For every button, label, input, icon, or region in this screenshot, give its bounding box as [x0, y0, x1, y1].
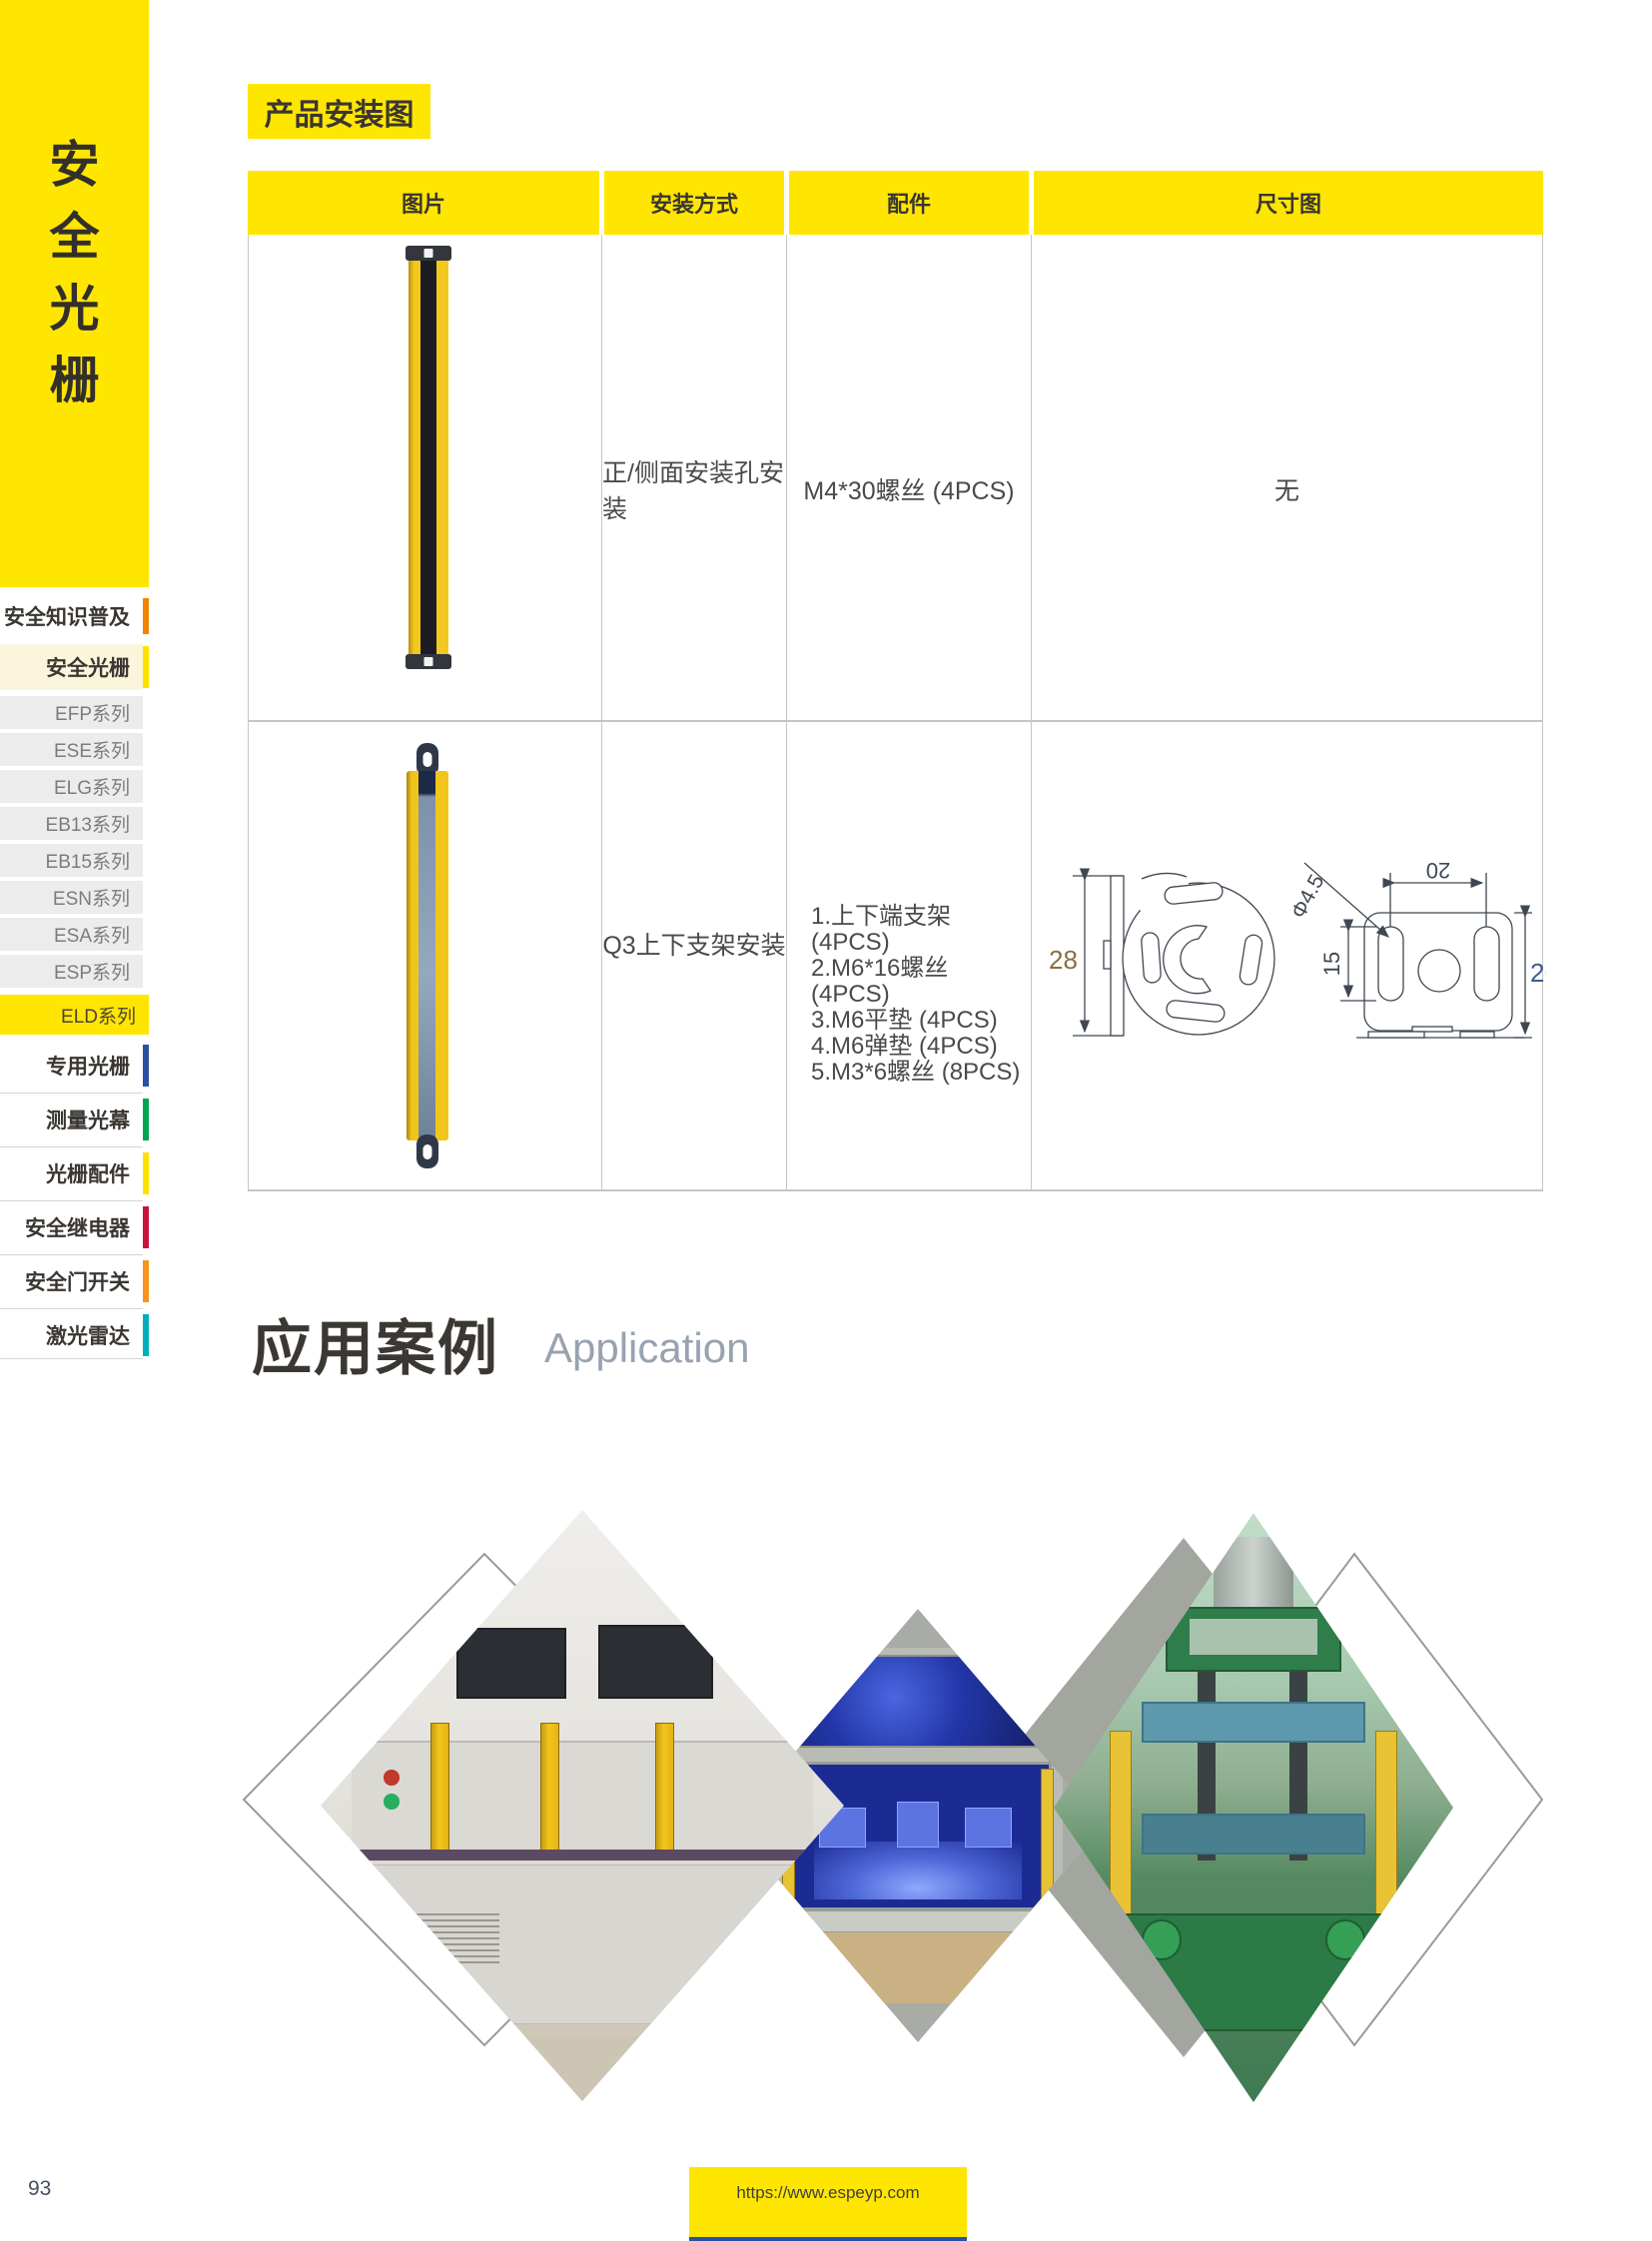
sidebar-item-safety-door-switch[interactable]: 安全门开关	[0, 1256, 143, 1306]
sidebar-divider	[0, 1093, 143, 1094]
table-grid-line	[1031, 235, 1032, 1190]
application-title-cn: 应用案例	[252, 1300, 499, 1387]
sidebar-item-safety-knowledge[interactable]: 安全知识普及	[0, 596, 143, 636]
dim-label-15: 15	[1319, 952, 1344, 976]
sidebar-bar-orange	[143, 598, 149, 634]
sidebar-item-laser-radar[interactable]: 激光雷达	[0, 1310, 143, 1360]
brand-char: 栅	[50, 356, 100, 405]
sidebar-bar-teal	[143, 1314, 149, 1356]
sidebar-bar-green	[143, 1099, 149, 1140]
sidebar-bar-yellow	[143, 646, 149, 688]
sidebar-item-esn-series[interactable]: ESN系列	[0, 881, 143, 914]
accessory-item: 4.M6弹垫 (4PCS)	[811, 1034, 1031, 1060]
dim-label-20: 20	[1426, 858, 1450, 883]
accessory-item: 3.M6平垫 (4PCS)	[811, 1008, 1031, 1034]
table-header-accessories: 配件	[789, 171, 1029, 235]
accessory-item: 2.M6*16螺丝 (4PCS)	[811, 956, 1031, 1008]
sidebar-item-eb15-series[interactable]: EB15系列	[0, 844, 143, 877]
brand-char: 光	[50, 284, 100, 334]
sidebar-brand-vertical-title: 安 全 光 栅	[0, 140, 149, 405]
page-number: 93	[28, 2177, 51, 2201]
table-header-image: 图片	[248, 171, 599, 235]
brand-char: 安	[50, 140, 100, 190]
dim-label-28: 28	[1049, 945, 1078, 975]
sidebar-item-special-curtain[interactable]: 专用光栅	[0, 1041, 143, 1091]
sidebar-bar-blue	[143, 1045, 149, 1087]
sidebar-divider	[0, 1146, 143, 1147]
table-border-left	[248, 235, 249, 1190]
row1-accessories: M4*30螺丝 (4PCS)	[787, 459, 1031, 519]
table-border-bottom	[248, 1189, 1543, 1191]
sidebar-item-ese-series[interactable]: ESE系列	[0, 733, 143, 766]
table-header-install-method: 安装方式	[604, 171, 784, 235]
row2-accessories-list: 1.上下端支架 (4PCS) 2.M6*16螺丝 (4PCS) 3.M6平垫 (…	[811, 904, 1031, 1086]
light-curtain-image-row1	[406, 246, 451, 669]
accessory-item: 1.上下端支架 (4PCS)	[811, 904, 1031, 956]
sidebar-item-esp-series[interactable]: ESP系列	[0, 955, 143, 988]
sidebar-divider	[0, 1358, 143, 1359]
dim-label-diameter: Φ4.5	[1287, 871, 1329, 922]
sidebar-bar-amber	[143, 1260, 149, 1302]
sidebar-item-efp-series[interactable]: EFP系列	[0, 696, 143, 729]
sidebar-brand-block: 安 全 光 栅	[0, 0, 149, 587]
catalog-page: 安 全 光 栅 安全知识普及 安全光栅 EFP系列 ESE系列 ELG系列 EB…	[0, 0, 1652, 2241]
page-title: 产品安装图	[248, 84, 430, 139]
sidebar-divider	[0, 1200, 143, 1201]
application-title-en: Application	[544, 1324, 749, 1372]
accessory-item: 5.M3*6螺丝 (8PCS)	[811, 1060, 1031, 1086]
sidebar-item-safety-light-curtain[interactable]: 安全光栅	[0, 644, 143, 690]
sidebar-item-curtain-accessories[interactable]: 光栅配件	[0, 1148, 143, 1198]
light-curtain-image-row2	[402, 743, 453, 1168]
dim-label-26: 26	[1530, 958, 1546, 988]
footer-url-bar: https://www.espeyp.com	[689, 2167, 967, 2241]
sidebar-bar-yellow2	[143, 1152, 149, 1194]
table-grid-line	[786, 235, 787, 1190]
table-header-dimension: 尺寸图	[1034, 171, 1543, 235]
table-row-divider	[248, 720, 1543, 722]
sidebar-item-elg-series[interactable]: ELG系列	[0, 770, 143, 803]
sidebar-item-safety-relay[interactable]: 安全继电器	[0, 1202, 143, 1252]
sidebar-item-esa-series[interactable]: ESA系列	[0, 918, 143, 951]
sidebar-divider	[0, 1308, 143, 1309]
bracket-dimension-drawing: 28 20 15 Φ4.5 26	[1047, 851, 1546, 1061]
footer-url[interactable]: https://www.espeyp.com	[689, 2183, 967, 2203]
sidebar-item-eb13-series[interactable]: EB13系列	[0, 807, 143, 840]
sidebar-bar-crimson	[143, 1206, 149, 1248]
sidebar-item-eld-series-active[interactable]: ELD系列	[0, 995, 149, 1035]
sidebar-item-measuring-curtain[interactable]: 测量光幕	[0, 1095, 143, 1144]
brand-char: 全	[50, 212, 100, 262]
row1-install-method: 正/侧面安装孔安装	[602, 459, 786, 519]
footer-blue-strip	[689, 2237, 967, 2241]
row1-dimension-note: 无	[1032, 459, 1542, 519]
row2-install-method: Q3上下支架安装	[602, 914, 786, 974]
table-grid-line	[601, 235, 602, 1190]
sidebar-divider	[0, 1254, 143, 1255]
